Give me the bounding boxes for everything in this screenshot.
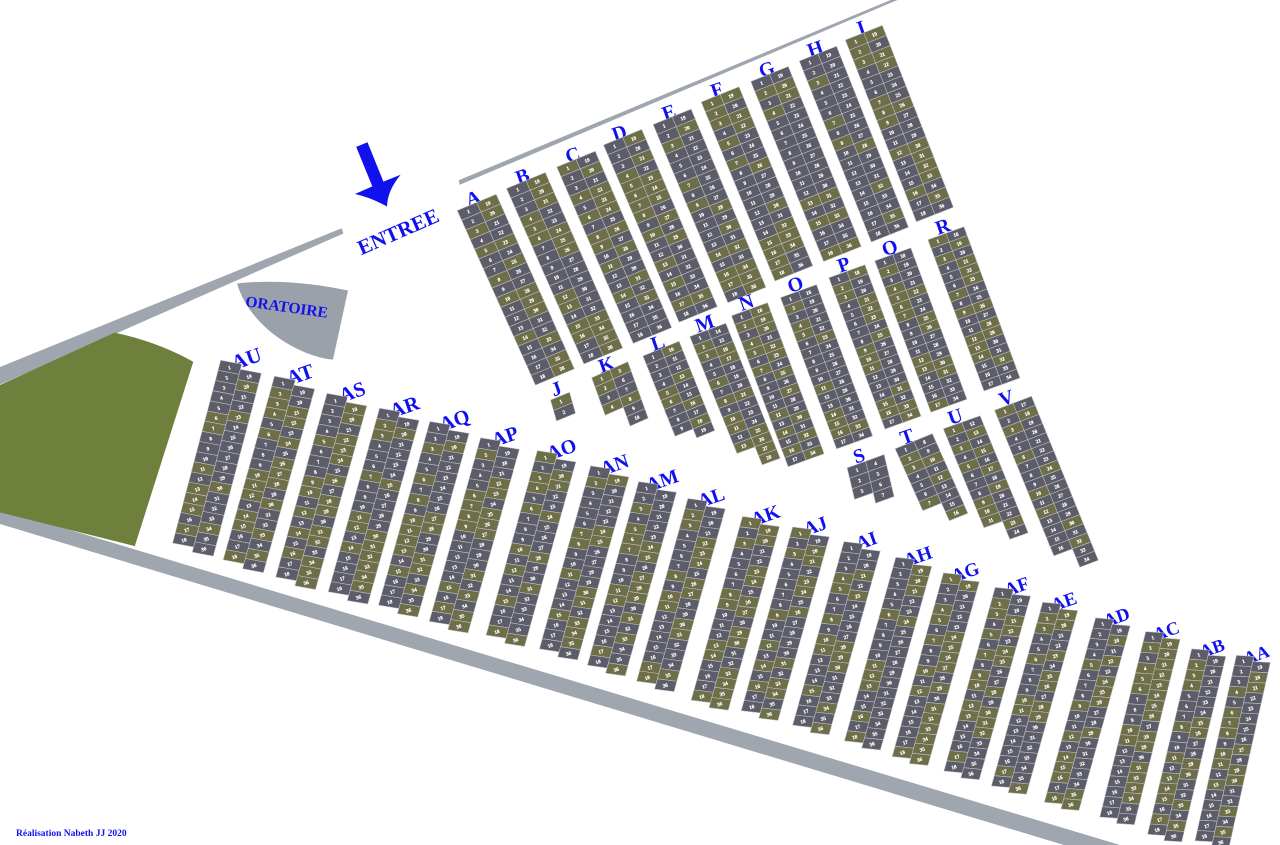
svg-text:Réalisation Nabeth JJ 2020: Réalisation Nabeth JJ 2020	[16, 829, 127, 839]
